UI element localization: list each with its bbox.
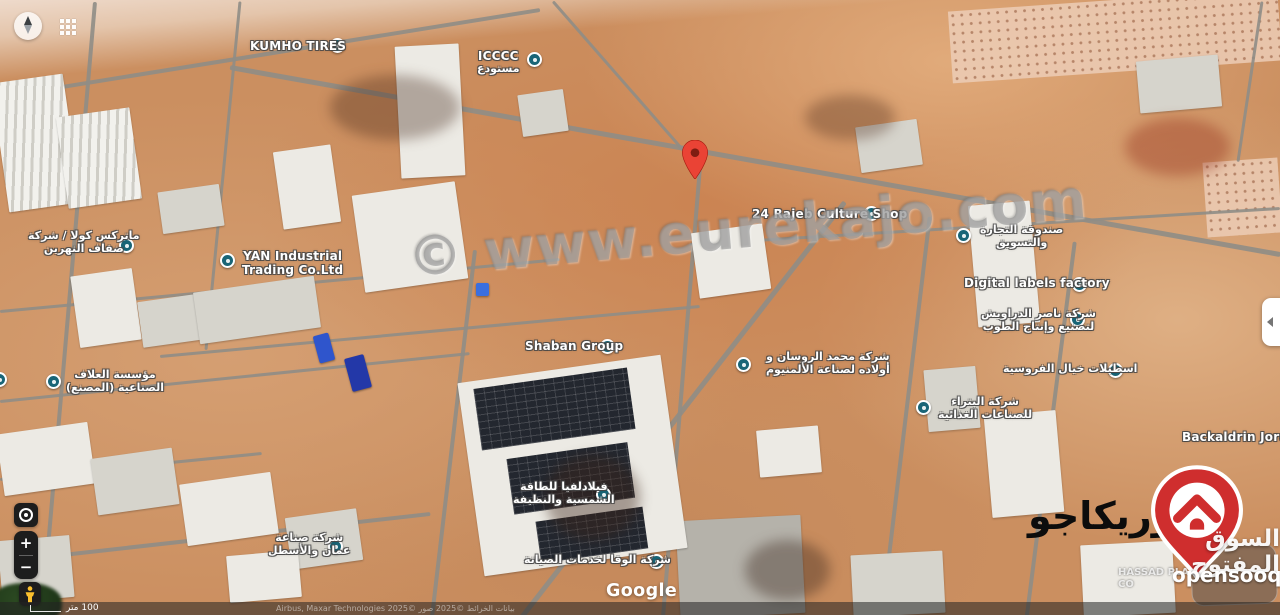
map-label-digital-labels-factory[interactable]: Digital labels factory [964, 276, 1110, 290]
truck [344, 354, 372, 392]
bld [1136, 55, 1222, 114]
bld [90, 448, 179, 516]
place-marker-icon[interactable] [736, 357, 751, 372]
label-line: Shaban Group [525, 339, 623, 353]
map-label-wafa-maintenance[interactable]: شركة الوفا لخدمات الصيانة [524, 554, 671, 567]
compass-icon[interactable] [14, 12, 42, 40]
zoom-control: + − [14, 531, 38, 579]
place-marker-icon[interactable] [527, 52, 542, 67]
pegman-icon [24, 586, 36, 603]
bld [756, 425, 822, 477]
label-line: YAN Industrial [242, 249, 343, 263]
map-label-philadelphia-solar[interactable]: فيلادلفيا للطاقةالشمسية والنظيفة [513, 481, 615, 507]
bld [56, 107, 142, 208]
scale-label: 100 متر [66, 603, 99, 613]
orchard-field [1202, 157, 1280, 237]
label-line: والتسويق [980, 237, 1063, 250]
place-marker-icon[interactable] [0, 372, 7, 387]
orchard-field [948, 0, 1280, 83]
attribution-bar: 100 متر بيانات الخرائط ©2025 صور ©2025 A… [0, 602, 1280, 615]
truck [313, 332, 336, 363]
locate-icon [19, 508, 33, 522]
map-label-sinaa-company[interactable]: شركة صناعةعمان والأسطل [268, 532, 350, 558]
zoom-out-button[interactable]: − [14, 557, 38, 577]
label-line: الشمسية والنظيفة [513, 494, 615, 507]
label-line: Digital labels factory [964, 276, 1110, 290]
label-line: الصناعية (المصنع) [66, 382, 164, 395]
place-marker-icon[interactable] [46, 374, 61, 389]
map-label-shaban-group[interactable]: Shaban Group [525, 339, 623, 353]
label-line: ضفاف النهرين [28, 243, 140, 256]
bld [273, 144, 341, 229]
smudge [330, 75, 460, 140]
solar-panels [473, 367, 635, 450]
map-label-nasser-darawish-bricks[interactable]: شركة ناصر الدراويشلتصنيع وإنتاج الطوب [981, 308, 1096, 334]
apps-grid-icon[interactable] [60, 19, 76, 35]
label-line: أولاده لصناعة الألمنيوم [766, 364, 890, 377]
map-label-roussan-aluminium[interactable]: شركة محمد الروسان وأولاده لصناعة الألمني… [766, 351, 890, 377]
label-line: شركة الوفا لخدمات الصيانة [524, 554, 671, 567]
map-label-kumho-tires[interactable]: KUMHO TIRES [250, 39, 346, 53]
satellite-map[interactable]: © www.eurekajo.com KUMHO TIRESICCCCمستود… [0, 0, 1280, 615]
divider [19, 555, 33, 556]
bld [137, 294, 201, 348]
location-pin-icon[interactable] [682, 140, 708, 183]
label-line: للصناعات الغذائية [938, 409, 1032, 422]
label-line: عمان والأسطل [268, 545, 350, 558]
label-line: لتصنيع وإنتاج الطوب [981, 321, 1096, 334]
label-line: Backaldrin Jordan [1182, 430, 1280, 444]
bld [70, 268, 141, 348]
smudge [805, 95, 895, 140]
map-label-allaf-industrial[interactable]: مؤسسة العلافالصناعية (المصنع) [66, 369, 164, 395]
truck [476, 283, 489, 296]
label-line: Trading Co.Ltd [242, 263, 343, 277]
map-label-yan-industrial-trading[interactable]: YAN IndustrialTrading Co.Ltd [242, 249, 343, 277]
google-logo: Google [606, 581, 677, 601]
bld [157, 184, 224, 234]
smudge [745, 540, 830, 600]
zoom-in-button[interactable]: + [14, 533, 38, 553]
map-label-petra-food-industries[interactable]: شركة البتراءللصناعات الغذائية [938, 396, 1032, 422]
place-marker-icon[interactable] [916, 400, 931, 415]
imagery-credits: بيانات الخرائط ©2025 صور ©2025 Airbus, M… [276, 604, 515, 613]
map-label-backaldrin-jordan[interactable]: Backaldrin Jordan [1182, 430, 1280, 444]
opensooq-latin-text: opensooq [1172, 563, 1280, 587]
place-marker-icon[interactable] [220, 253, 235, 268]
panel-toggle-button[interactable] [1262, 298, 1280, 346]
bld [179, 472, 279, 546]
map-label-icccc-warehouse[interactable]: ICCCCمستودع [477, 49, 520, 76]
scale-bar [30, 605, 61, 612]
label-line: اسطبلات خيال الفروسية [1003, 363, 1137, 376]
map-label-matrix-cola[interactable]: ماتركس كولا / شركةضفاف النهرين [28, 230, 140, 256]
smudge [1125, 118, 1230, 176]
my-location-button[interactable] [14, 503, 38, 527]
label-line: KUMHO TIRES [250, 39, 346, 53]
label-line: مستودع [477, 63, 520, 76]
bld [517, 89, 568, 137]
map-label-equestrian-stables[interactable]: اسطبلات خيال الفروسية [1003, 363, 1137, 376]
chevron-left-icon [1267, 317, 1273, 327]
bld [0, 422, 96, 496]
